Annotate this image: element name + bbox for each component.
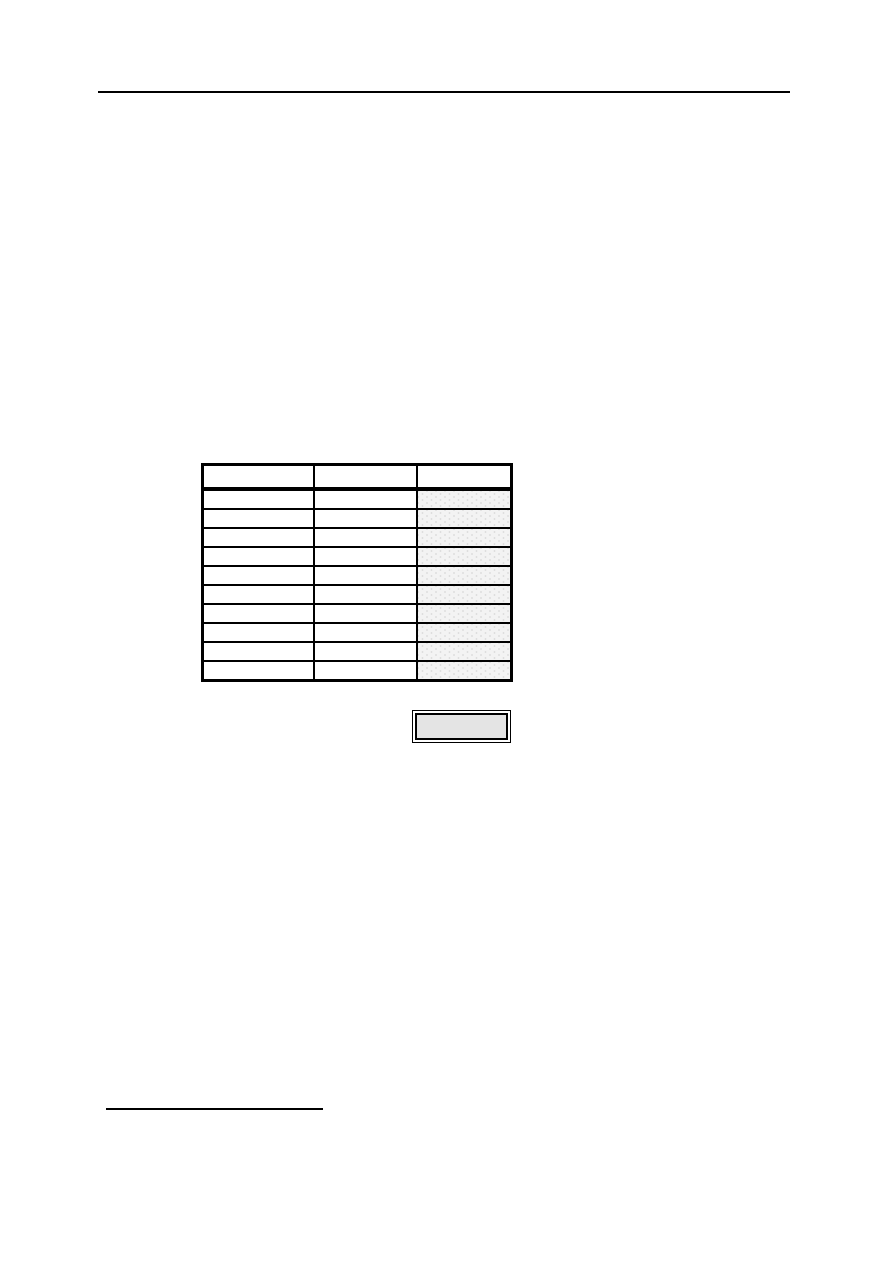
table-header-cell xyxy=(314,465,417,490)
table-header-cell xyxy=(417,465,512,490)
table-row xyxy=(203,642,512,661)
document-page xyxy=(0,0,893,1263)
data-table xyxy=(201,463,513,682)
table-cell xyxy=(314,489,417,509)
table-cell xyxy=(314,642,417,661)
header-rule xyxy=(98,91,790,93)
table-cell-shaded xyxy=(417,642,512,661)
table-cell-shaded xyxy=(417,585,512,604)
table-cell xyxy=(314,661,417,681)
table-cell xyxy=(314,528,417,547)
table-cell xyxy=(203,642,314,661)
table-row xyxy=(203,585,512,604)
table-row xyxy=(203,509,512,528)
table-cell xyxy=(203,661,314,681)
table-row xyxy=(203,489,512,509)
table-cell xyxy=(203,509,314,528)
footnote-rule xyxy=(106,1108,323,1110)
table-row xyxy=(203,528,512,547)
table-row xyxy=(203,604,512,623)
table-cell xyxy=(203,566,314,585)
table-cell xyxy=(203,623,314,642)
table-cell xyxy=(314,547,417,566)
table-cell xyxy=(203,585,314,604)
table-row xyxy=(203,566,512,585)
table-header-row xyxy=(203,465,512,490)
table-cell-shaded xyxy=(417,528,512,547)
table-cell xyxy=(203,604,314,623)
table-cell xyxy=(203,547,314,566)
table-cell-shaded xyxy=(417,547,512,566)
table-row xyxy=(203,661,512,681)
table-header-cell xyxy=(203,465,314,490)
table-cell xyxy=(314,604,417,623)
table-row xyxy=(203,547,512,566)
summary-box-value xyxy=(415,713,508,740)
table-cell-shaded xyxy=(417,509,512,528)
table-cell-shaded xyxy=(417,489,512,509)
table-cell-shaded xyxy=(417,623,512,642)
table-row xyxy=(203,623,512,642)
table-cell xyxy=(314,623,417,642)
table-cell xyxy=(314,585,417,604)
table-body xyxy=(203,489,512,681)
table-cell-shaded xyxy=(417,604,512,623)
table-cell xyxy=(203,528,314,547)
table-cell xyxy=(314,509,417,528)
table-cell xyxy=(203,489,314,509)
summary-box xyxy=(412,710,511,743)
table-header xyxy=(203,465,512,490)
table-cell xyxy=(314,566,417,585)
table-cell-shaded xyxy=(417,566,512,585)
table-cell-shaded xyxy=(417,661,512,681)
